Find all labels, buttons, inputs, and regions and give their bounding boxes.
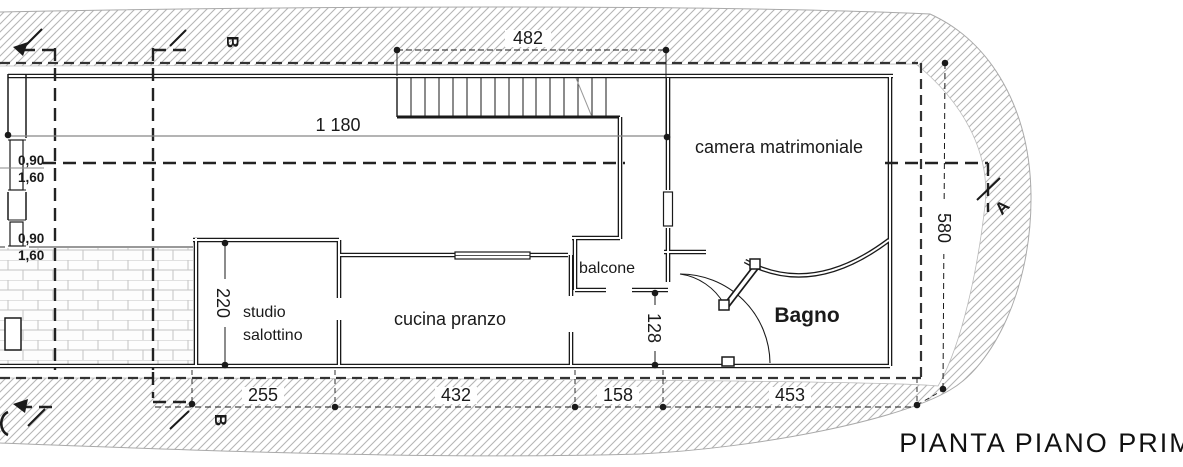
- dim-label-220: 220: [213, 288, 233, 318]
- dim-label-255: 255: [248, 385, 278, 405]
- sill-label-2a: 0,90: [18, 231, 44, 246]
- door-hinge-block-1: [719, 300, 729, 310]
- dim-label-128: 128: [644, 313, 664, 343]
- room-label-salottino: salottino: [243, 327, 303, 344]
- room-label-camera-matrimoniale: camera matrimoniale: [695, 137, 863, 157]
- room-label-bagno: Bagno: [774, 304, 839, 327]
- floor-plan-svg: B B A: [0, 0, 1183, 467]
- dim-label-453: 453: [775, 385, 805, 405]
- terrace-brick-floor: [0, 247, 193, 366]
- terrace: [0, 247, 193, 366]
- drawing-title: PIANTA PIANO PRIMO: [899, 428, 1183, 458]
- room-label-cucina-pranzo: cucina pranzo: [394, 309, 506, 329]
- sill-label-2b: 1,60: [18, 248, 44, 263]
- sill-label-1b: 1,60: [18, 170, 44, 185]
- staircase: [397, 78, 620, 117]
- room-label-studio: studio: [243, 304, 286, 321]
- terrace-pillar: [5, 318, 21, 350]
- dim-label-432: 432: [441, 385, 471, 405]
- dim-label-1180: 1 180: [315, 115, 360, 135]
- door-hinge-block-2: [750, 259, 760, 269]
- bedroom-window-icon: [664, 192, 673, 226]
- sill-label-1a: 0,90: [18, 153, 44, 168]
- dim-label-158: 158: [603, 385, 633, 405]
- floor-plan-canvas: B B A: [0, 0, 1183, 467]
- section-b-top-label: B: [223, 36, 242, 48]
- dim-label-482: 482: [513, 28, 543, 48]
- dim-label-580: 580: [934, 213, 954, 243]
- room-label-balcone: balcone: [579, 260, 635, 277]
- section-b-bottom-label: B: [211, 414, 230, 426]
- bath-wall-notch: [722, 357, 734, 366]
